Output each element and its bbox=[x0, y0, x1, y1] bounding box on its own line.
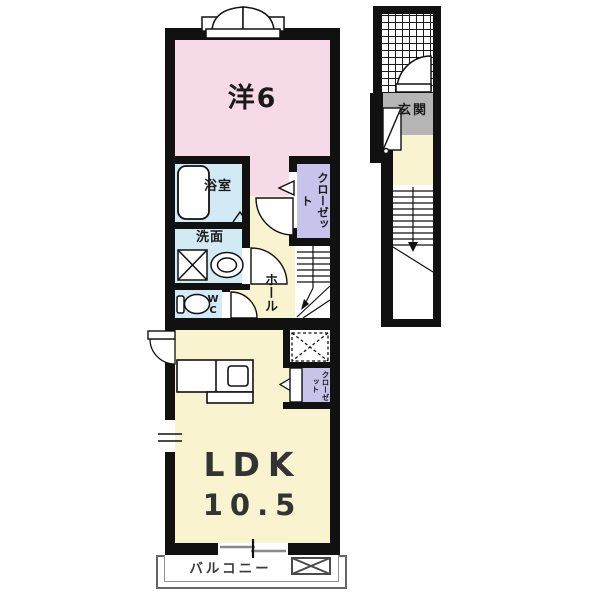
western-room-door-icon bbox=[256, 198, 293, 235]
wash-basin-icon bbox=[211, 253, 243, 278]
refrigerator-space-icon bbox=[292, 333, 328, 361]
balcony-window-icon bbox=[218, 539, 288, 558]
ldk-side-window-icon bbox=[158, 434, 182, 441]
ldk-label: LDK bbox=[175, 446, 330, 484]
washroom-label: 洗面 bbox=[196, 231, 224, 246]
ldk-size-label: 10.5 bbox=[175, 489, 330, 522]
wc-door-icon bbox=[231, 292, 257, 318]
western-room-window-icon bbox=[202, 7, 284, 38]
floor-plan: 洋6 浴室 洗面 WC ホール クローゼット クローゼット LDK 10.5 バ… bbox=[0, 0, 600, 600]
balcony-x-box-icon bbox=[292, 558, 330, 574]
closet-label: クローゼット bbox=[299, 168, 331, 234]
balcony-label: バルコニー bbox=[168, 562, 293, 578]
washing-machine-icon bbox=[178, 250, 207, 280]
ldk-closet-door-icon bbox=[290, 368, 302, 402]
bathroom-label: 浴室 bbox=[204, 180, 232, 195]
kitchen-window-icon bbox=[148, 331, 175, 364]
closet-open-arrow-icon bbox=[279, 181, 294, 195]
entrance-label: 玄関 bbox=[398, 104, 428, 119]
bath-door-icon bbox=[233, 212, 247, 222]
wc-label: WC bbox=[207, 289, 219, 321]
ldk-closet-label: クローゼット bbox=[304, 370, 330, 401]
stairs-1f-icon bbox=[393, 187, 433, 272]
toilet-icon bbox=[177, 295, 210, 314]
western-room-label: 洋6 bbox=[175, 83, 330, 114]
hall-label: ホール bbox=[261, 263, 276, 321]
entrance-door-icon bbox=[396, 56, 431, 92]
stairs-2f-icon bbox=[297, 246, 330, 318]
kitchen-counter-icon bbox=[177, 360, 253, 403]
